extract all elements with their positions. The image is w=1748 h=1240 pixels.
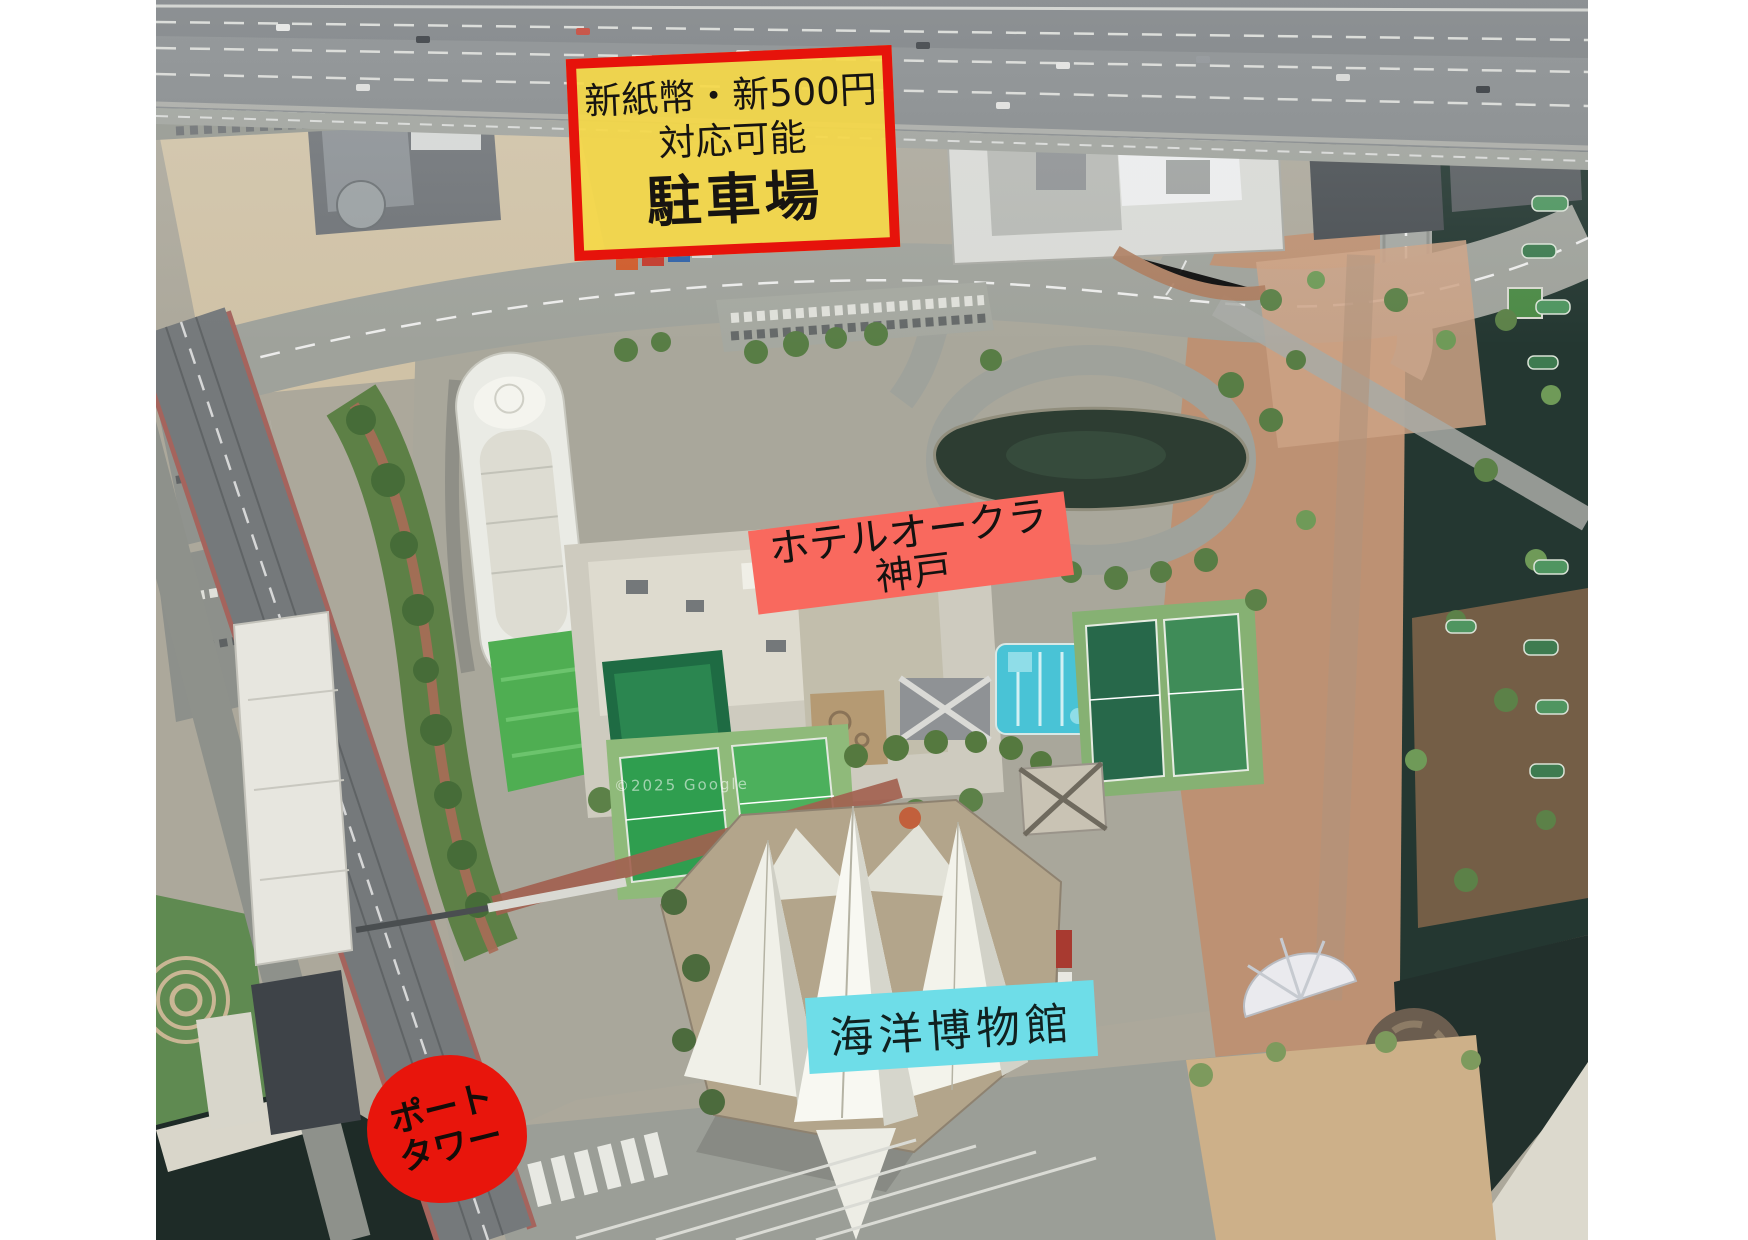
parking-annotation-line2: 対応可能 bbox=[658, 115, 808, 167]
maritime-museum-annotation-label: 海洋博物館 bbox=[827, 987, 1076, 1066]
parking-annotation-line1: 新紙幣・新500円 bbox=[583, 67, 877, 125]
google-watermark: ©2025 Google bbox=[614, 775, 749, 795]
parking-annotation: 新紙幣・新500円 対応可能 駐車場 bbox=[566, 45, 901, 261]
parking-annotation-line3: 駐車場 bbox=[645, 162, 825, 237]
annotated-satellite-map: ©2025 Google 新紙幣・新500円 対応可能 駐車場 ホテルオークラ … bbox=[0, 0, 1748, 1240]
hotel-okura-annotation-line2: 神戸 bbox=[873, 549, 953, 598]
satellite-image: ©2025 Google 新紙幣・新500円 対応可能 駐車場 ホテルオークラ … bbox=[156, 0, 1588, 1240]
port-tower-annotation-text: ポート タワー bbox=[387, 1078, 508, 1179]
port-tower-annotation: ポート タワー bbox=[367, 1055, 527, 1203]
